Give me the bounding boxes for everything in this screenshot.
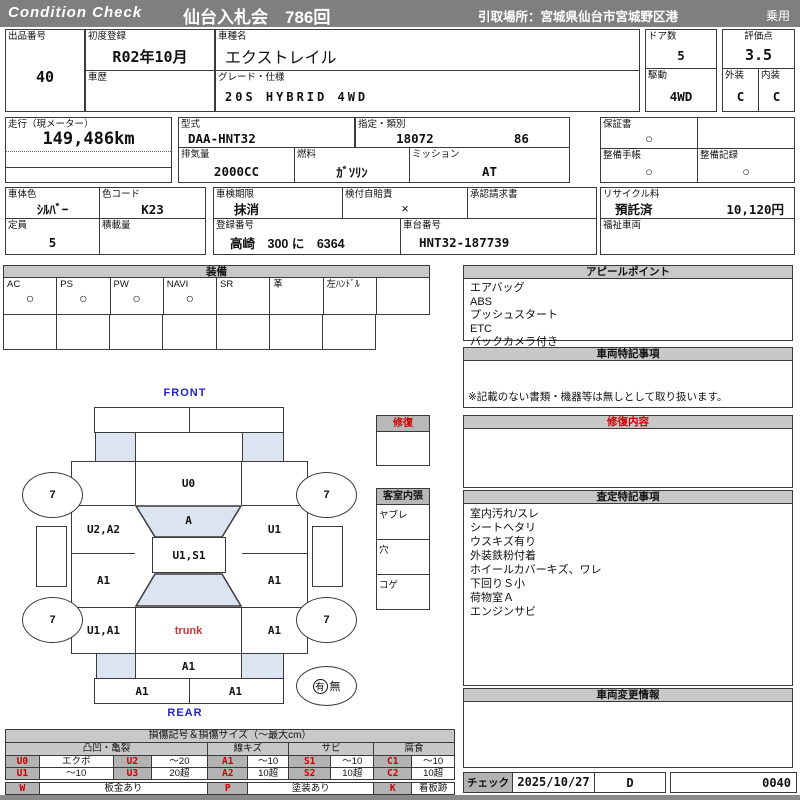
check-row: チェック 2025/10/27 D	[463, 772, 666, 793]
wheel-rear-left: 7	[22, 597, 83, 643]
assessment-item: 荷物室Ａ	[470, 591, 786, 605]
legend-row-1: U0エクボ U2～20 A1～10 S1～10 C1～10	[6, 756, 455, 768]
change-info-box: 車両変更情報	[463, 688, 793, 768]
trunk-area: trunk	[135, 607, 242, 654]
exterior-grade-cell: 外装 C	[722, 68, 759, 112]
cabin-lining-row: コゲ	[377, 575, 429, 609]
assessment-item: 下回りＳ小	[470, 577, 786, 591]
equipment-cell	[163, 315, 216, 350]
assessment-item: エンジンサビ	[470, 605, 786, 619]
appeal-item: ETC	[470, 323, 786, 337]
mileage-cell: 走行（現メーター） 149,486km	[5, 117, 172, 183]
appeal-points-list: エアバッグABSプッシュスタートETCバックカメラ付き	[464, 279, 792, 353]
cabin-lining-rows: ヤブレ穴コゲ	[377, 505, 429, 609]
cabin-lining-title: 客室内張	[377, 489, 429, 505]
assessment-item: 室内汚れ/スレ	[470, 507, 786, 521]
check-number: 0040	[762, 776, 796, 790]
recycle-fee-cell: リサイクル料 預託済 10,120円	[600, 187, 795, 219]
change-info-title: 車両変更情報	[464, 689, 792, 702]
first-registration-cell: 初度登録 R02年10月	[85, 29, 215, 71]
legend-size-table: 損傷記号＆損傷サイズ（～最大cm） 凸凹・亀裂 線キズ サビ 腐食 U0エクボ …	[5, 729, 455, 780]
equipment-cell	[270, 315, 323, 350]
headlight-left	[95, 432, 136, 462]
door-front-left: U2,A2	[71, 505, 136, 554]
mileage-value: 149,486km	[6, 130, 171, 149]
model-code-value: DAA-HNT32	[179, 130, 354, 147]
cabin-lining-row: ヤブレ	[377, 505, 429, 540]
bottom-bar	[0, 795, 800, 800]
wheel-front-left: 7	[22, 472, 83, 518]
presence-no: 無	[330, 678, 341, 694]
pickup-location: 引取場所：宮城県仙台市宮城野区港	[478, 6, 678, 25]
check-label: チェック	[464, 773, 513, 792]
fuel-cell: 燃料 ｶﾞｿﾘﾝ	[294, 147, 410, 183]
equipment-cell: 左ﾊﾝﾄﾞﾙ	[324, 278, 377, 315]
wheel-rear-right: 7	[296, 597, 357, 643]
check-number-cell: 0040	[670, 772, 797, 793]
chassis-number-cell: 車台番号 HNT32-187739	[400, 218, 597, 255]
color-code-cell: 色コード K23	[99, 187, 206, 219]
wheel-front-right: 7	[296, 472, 357, 518]
door-rear-right: A1	[241, 553, 308, 608]
interior-grade-cell: 内装 C	[758, 68, 795, 112]
front-label: FRONT	[140, 387, 230, 399]
registration-number-value: 高崎 300 に 6364	[214, 231, 400, 254]
damage-legend: 損傷記号＆損傷サイズ（～最大cm） 凸凹・亀裂 線キズ サビ 腐食 U0エクボ …	[5, 729, 455, 800]
assessment-item: ホイールカバーキズ、ワレ	[470, 563, 786, 577]
taillight-right	[241, 653, 284, 679]
condition-check-sheet: Condition Check 仙台入札会 786回 引取場所：宮城県仙台市宮城…	[0, 0, 800, 800]
repair-mini-title: 修復	[377, 416, 429, 432]
registration-number-cell: 登録番号 高崎 300 に 6364	[213, 218, 401, 255]
equipment-cell	[57, 315, 110, 350]
vehicle-notes-box: 車両特記事項 ※記載のない書類・機器等は無しとして取り扱います。	[463, 347, 793, 408]
load-capacity-cell: 積載量	[99, 218, 206, 255]
rear-window-shape	[136, 574, 241, 606]
header-bar: Condition Check 仙台入札会 786回 引取場所：宮城県仙台市宮城…	[0, 0, 800, 27]
equipment-cell: NAVI ○	[164, 278, 217, 315]
equipment-empty-row	[3, 315, 376, 350]
door-rear-left: A1	[71, 553, 136, 608]
legend-title: 損傷記号＆損傷サイズ（～最大cm）	[6, 730, 455, 743]
vehicle-category: 乗用	[766, 7, 790, 24]
equipment-cell	[323, 315, 376, 350]
presence-yes: 有	[313, 679, 328, 694]
transmission-cell: ミッション AT	[409, 147, 570, 183]
legend-row-3: W板金あり P塗装あり K看板跡	[6, 783, 455, 795]
repair-content-body	[464, 429, 792, 435]
check-date: 2025/10/27	[513, 773, 595, 792]
welfare-vehicle-cell: 福祉車両	[600, 218, 795, 255]
mirror-right	[312, 526, 343, 587]
chassis-number-value: HNT32-187739	[401, 231, 596, 254]
class-number-1: 18072	[396, 131, 434, 146]
door-front-right: U1	[241, 505, 308, 554]
appeal-item: エアバッグ	[470, 282, 786, 296]
drive-cell: 駆動 4WD	[645, 68, 717, 112]
rear-label: REAR	[140, 707, 230, 719]
class-number-2: 86	[514, 131, 529, 146]
recycle-status: 預託済	[615, 199, 653, 218]
history-cell: 車歴	[85, 70, 215, 112]
repair-mini-box: 修復	[376, 415, 430, 466]
doors-cell: ドア数 5	[645, 29, 717, 69]
appeal-points-box: アピールポイント エアバッグABSプッシュスタートETCバックカメラ付き	[463, 265, 793, 341]
displacement-cell: 排気量 2000CC	[178, 147, 295, 183]
equipment-cell: AC ○	[4, 278, 57, 315]
vehicle-notes-disclaimer: ※記載のない書類・機器等は無しとして取り扱います。	[468, 391, 727, 405]
repair-content-title: 修復内容	[464, 416, 792, 429]
appeal-item: ABS	[470, 296, 786, 310]
hood-panel: U0	[135, 461, 242, 506]
assessment-notes-list: 室内汚れ/スレシートヘタリウスキズ有り外装鉄粉付着ホイールカバーキズ、ワレ下回り…	[464, 504, 792, 622]
assessment-item: ウスキズ有り	[470, 535, 786, 549]
equipment-table: 装備 AC ○ PS ○ PW ○ NAVI ○ SR 革 左ﾊﾝﾄﾞﾙ	[3, 265, 430, 350]
recycle-fee-value: 10,120円	[726, 199, 784, 218]
auction-title: 仙台入札会 786回	[183, 3, 330, 28]
equipment-cell: 革	[270, 278, 323, 315]
check-code: D	[595, 776, 665, 790]
cabin-lining-row: 穴	[377, 540, 429, 575]
grade-cell: グレード・仕様 20S HYBRID 4WD	[215, 70, 640, 112]
maintenance-book-cell: 整備手帳 ○	[600, 148, 698, 183]
model-name-value: エクストレイル	[216, 42, 639, 70]
model-name-cell: 車種名 エクストレイル	[215, 29, 640, 71]
windshield-code: A	[135, 514, 242, 527]
assessment-notes-title: 査定特記事項	[464, 491, 792, 504]
assessment-item: 外装鉄粉付着	[470, 549, 786, 563]
capacity-cell: 定員 5	[5, 218, 100, 255]
rear-bumper: A1 A1	[94, 678, 284, 704]
first-registration-value: R02年10月	[86, 42, 214, 70]
insurance-cell: 検付自賠責 ×	[342, 187, 468, 219]
trunk-label: trunk	[175, 625, 203, 637]
lot-number-value: 40	[6, 42, 84, 111]
empty-row	[6, 152, 171, 168]
equipment-cell	[110, 315, 163, 350]
model-code-cell: 型式 DAA-HNT32	[178, 117, 355, 148]
roof-code: U1,S1	[172, 549, 205, 562]
equipment-cell: PW ○	[111, 278, 164, 315]
lot-number-label: 出品番号	[6, 30, 84, 42]
assessment-item: シートヘタリ	[470, 521, 786, 535]
equipment-cell	[217, 315, 270, 350]
appeal-points-title: アピールポイント	[464, 266, 792, 279]
roof-panel: U1,S1	[152, 537, 226, 573]
brand-title: Condition Check	[8, 4, 142, 21]
maintenance-record-cell: 整備記録 ○	[697, 148, 795, 183]
legend-row-2: U1～10 U320超 A210超 S210超 C210超	[6, 768, 455, 780]
appeal-item: プッシュスタート	[470, 309, 786, 323]
equipment-cell	[4, 315, 57, 350]
spare-presence-mark: 有 無	[296, 666, 357, 706]
empty-row	[6, 168, 171, 183]
damage-diagram: FRONT U0 U2,A2 U1 A1 A1 U1,A1	[0, 385, 462, 730]
body-color-value: ｼﾙﾊﾞｰ	[6, 199, 99, 218]
cabin-lining-box: 客室内張 ヤブレ穴コゲ	[376, 488, 430, 610]
repair-content-box: 修復内容	[463, 415, 793, 488]
assessment-notes-box: 査定特記事項 室内汚れ/スレシートヘタリウスキズ有り外装鉄粉付着ホイールカバーキ…	[463, 490, 793, 686]
class-designation-cell: 指定・類別 18072 86	[355, 117, 570, 148]
grade-value: 20S HYBRID 4WD	[216, 83, 639, 111]
hood-code: U0	[182, 477, 195, 490]
approval-request-cell: 承認請求書	[467, 187, 597, 219]
warranty-cell: 保証書 ○	[600, 117, 698, 149]
mirror-left	[36, 526, 67, 587]
warranty-extra-cell	[697, 117, 795, 149]
vehicle-notes-title: 車両特記事項	[464, 348, 792, 361]
equipment-title: 装備	[3, 265, 430, 278]
lot-number-cell: 出品番号 40	[5, 29, 85, 112]
taillight-left	[96, 653, 136, 679]
tailgate-panel: A1	[135, 653, 242, 679]
inspection-expiry-cell: 車検期限 抹消	[213, 187, 343, 219]
divider	[189, 408, 190, 432]
equipment-cell: SR	[217, 278, 270, 315]
equipment-cell	[377, 278, 430, 315]
headlight-right	[242, 432, 284, 462]
change-info-body	[464, 702, 792, 708]
equipment-row: AC ○ PS ○ PW ○ NAVI ○ SR 革 左ﾊﾝﾄﾞﾙ	[3, 278, 430, 315]
score-value: 3.5	[723, 42, 794, 68]
score-cell: 評価点 3.5	[722, 29, 795, 69]
body-color-cell: 車体色 ｼﾙﾊﾞｰ	[5, 187, 100, 219]
equipment-cell: PS ○	[57, 278, 110, 315]
front-bumper	[94, 407, 284, 433]
